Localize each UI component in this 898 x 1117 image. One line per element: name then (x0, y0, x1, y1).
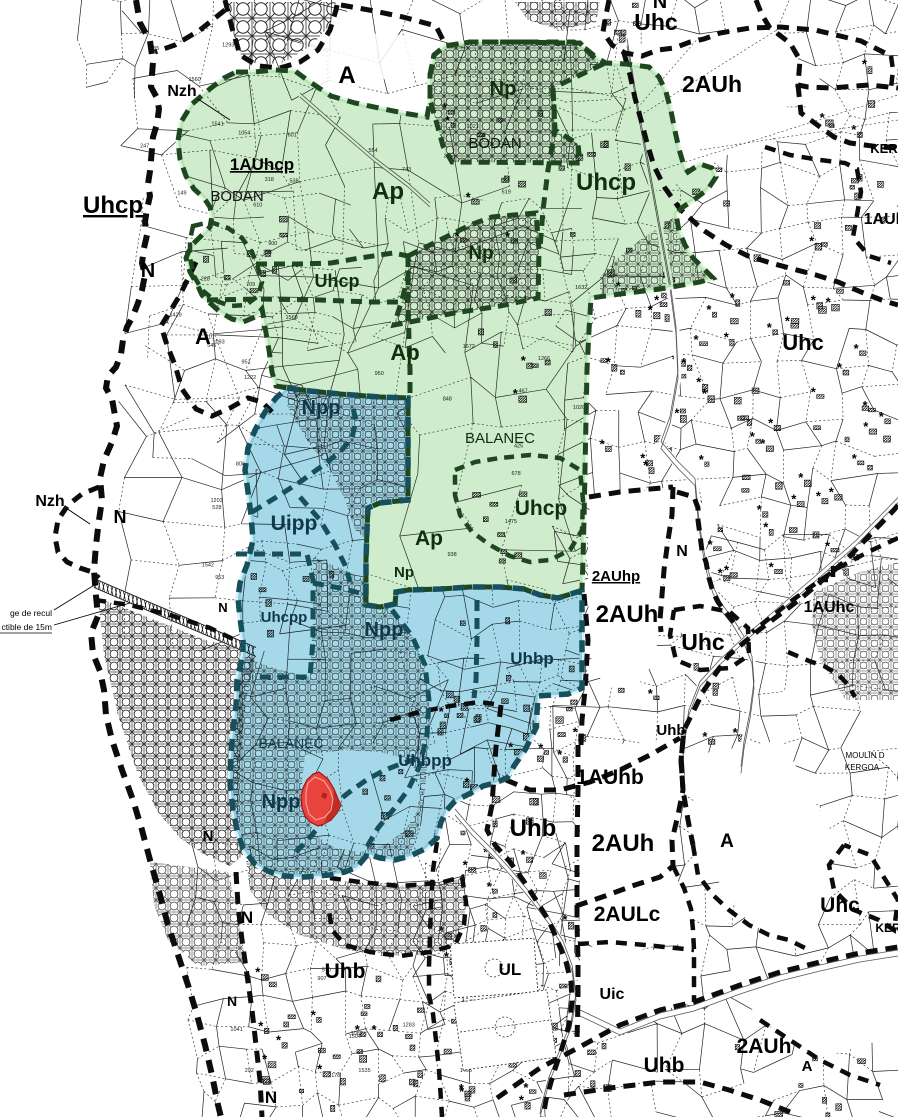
svg-text:Nzh: Nzh (35, 493, 64, 510)
svg-text:Uhbp: Uhbp (510, 649, 553, 668)
svg-text:N: N (141, 260, 155, 282)
svg-text:Uhb: Uhb (656, 722, 685, 739)
svg-text:1AUhc: 1AUhc (804, 599, 855, 616)
svg-text:953: 953 (215, 575, 224, 581)
svg-text:BODAN: BODAN (468, 135, 521, 152)
svg-text:ge de recul: ge de recul (10, 608, 52, 618)
svg-text:Uhb: Uhb (325, 960, 366, 983)
svg-text:N: N (265, 1088, 277, 1107)
svg-text:2AUh: 2AUh (592, 830, 655, 857)
svg-text:Ap: Ap (390, 340, 419, 365)
svg-text:149: 149 (177, 191, 186, 197)
svg-text:2AUh: 2AUh (682, 71, 742, 97)
svg-text:2AUh: 2AUh (737, 1035, 792, 1058)
svg-text:Ap: Ap (372, 178, 404, 205)
svg-text:1222: 1222 (244, 375, 256, 381)
svg-text:Uhcp: Uhcp (315, 271, 360, 291)
svg-text:1203: 1203 (211, 498, 223, 504)
svg-text:N: N (114, 507, 127, 527)
svg-text:A: A (802, 1058, 813, 1075)
svg-text:BODAN: BODAN (210, 188, 263, 205)
svg-text:2AULc: 2AULc (594, 903, 661, 926)
svg-text:Uhc: Uhc (820, 894, 860, 917)
svg-text:A: A (720, 831, 734, 852)
svg-text:Np: Np (468, 243, 493, 264)
svg-text:BALANEC: BALANEC (465, 430, 535, 447)
svg-text:BALANEC: BALANEC (258, 735, 323, 751)
svg-text:N: N (653, 0, 667, 13)
svg-text:Uhc: Uhc (681, 629, 725, 655)
svg-text:KERGOA: KERGOA (845, 763, 880, 772)
svg-text:Uipp: Uipp (271, 512, 318, 535)
svg-text:Np: Np (394, 564, 414, 581)
svg-text:N: N (203, 828, 214, 845)
svg-text:1AUhc: 1AUhc (864, 211, 898, 228)
svg-text:951: 951 (242, 359, 251, 365)
svg-text:KER: KER (870, 141, 898, 156)
svg-text:1AUhb: 1AUhb (576, 766, 644, 789)
svg-text:KER: KER (875, 921, 898, 935)
svg-text:Uhc: Uhc (782, 330, 824, 355)
svg-text:A: A (338, 62, 355, 89)
svg-text:Ap: Ap (415, 527, 443, 550)
svg-text:Uic: Uic (600, 986, 625, 1003)
svg-text:178: 178 (331, 1073, 340, 1079)
svg-text:N: N (241, 908, 253, 927)
svg-text:N: N (676, 543, 688, 560)
svg-text:Nzh: Nzh (167, 83, 196, 100)
svg-text:528: 528 (212, 505, 221, 511)
svg-text:1041: 1041 (230, 1027, 242, 1033)
svg-text:MOULIN D: MOULIN D (845, 751, 884, 760)
svg-text:247: 247 (140, 143, 149, 149)
svg-text:292: 292 (245, 1068, 254, 1074)
svg-text:Np: Np (490, 78, 517, 100)
svg-text:1AUhcp: 1AUhcp (230, 155, 294, 174)
svg-text:Uhbpp: Uhbpp (398, 751, 452, 770)
svg-text:1560: 1560 (189, 77, 201, 83)
svg-text:1542: 1542 (202, 563, 214, 569)
svg-text:N: N (227, 993, 237, 1009)
svg-text:N: N (218, 600, 227, 615)
svg-text:Npp: Npp (262, 791, 301, 813)
svg-text:1429: 1429 (170, 313, 182, 319)
svg-text:A: A (195, 324, 211, 349)
svg-text:2AUhp: 2AUhp (592, 568, 640, 585)
svg-text:1283: 1283 (403, 1022, 415, 1028)
svg-text:Uhcpp: Uhcpp (261, 609, 308, 626)
svg-text:Uhb: Uhb (644, 1054, 685, 1077)
svg-text:Uhcp: Uhcp (515, 497, 568, 520)
svg-text:2AUh: 2AUh (596, 601, 659, 628)
svg-text:UL: UL (499, 960, 522, 979)
svg-text:Uhb: Uhb (510, 815, 557, 842)
svg-text:ctible de 15m: ctible de 15m (1, 622, 52, 632)
svg-text:Uhcp: Uhcp (83, 192, 143, 219)
svg-text:1293: 1293 (222, 43, 234, 49)
svg-text:Npp: Npp (365, 619, 404, 641)
svg-text:1535: 1535 (358, 1068, 370, 1074)
svg-text:Npp: Npp (302, 397, 341, 419)
svg-text:Uhcp: Uhcp (576, 169, 636, 196)
